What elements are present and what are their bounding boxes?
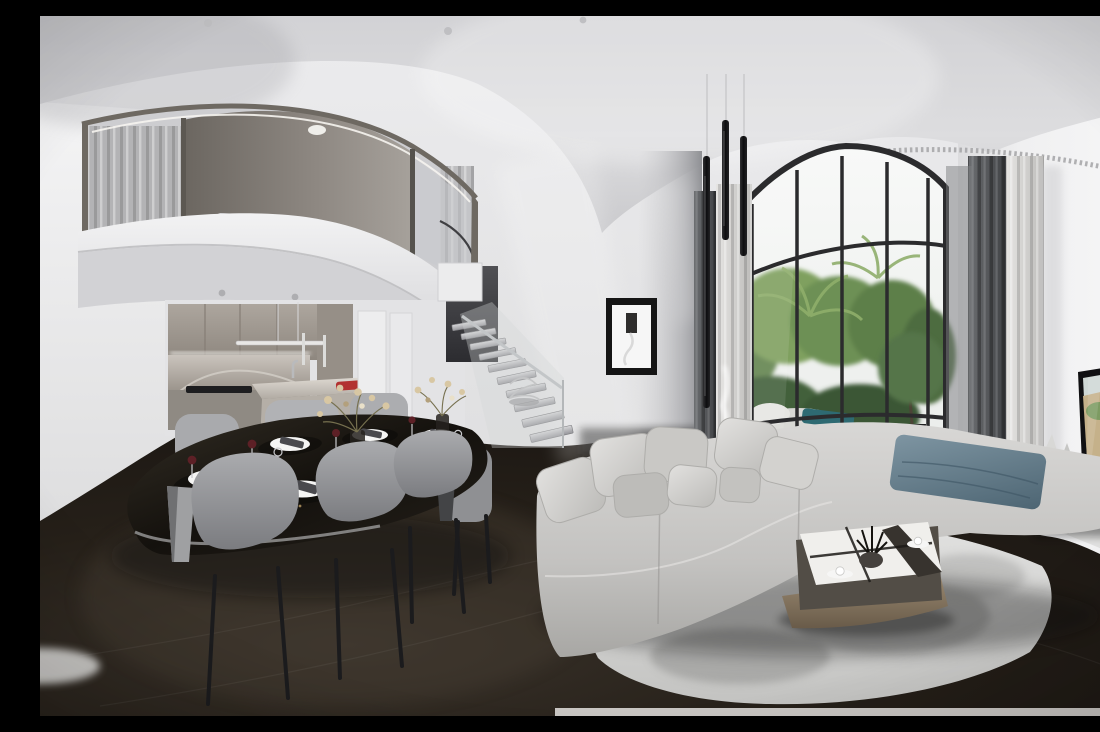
vignette [40,16,1100,716]
panorama-360-interior [40,16,1100,716]
panorama-canvas [40,16,1100,716]
